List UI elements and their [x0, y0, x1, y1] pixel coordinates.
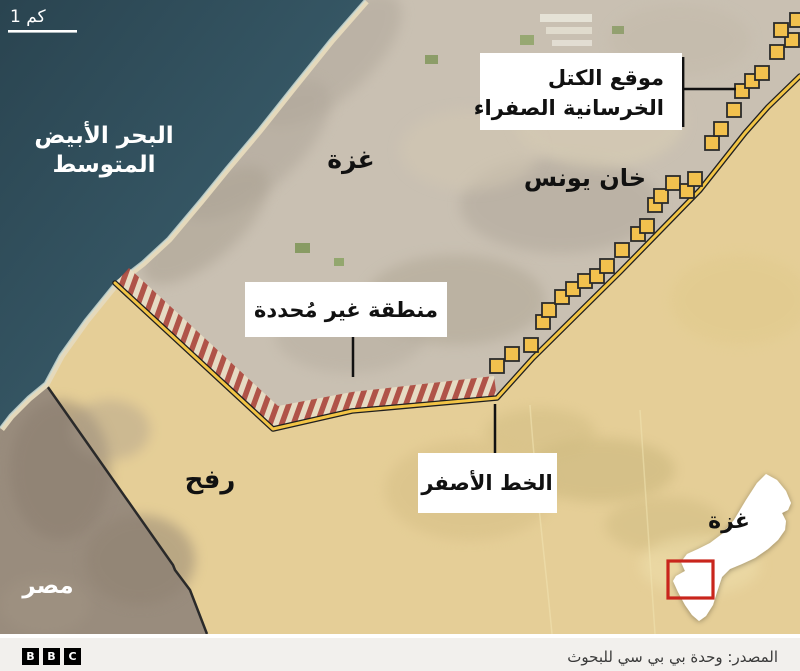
bbc-logo-block: B	[43, 648, 60, 665]
callout-yellow-line-label: الخط الأصفر	[420, 469, 552, 495]
concrete-block-icon	[705, 136, 719, 150]
concrete-block-icon	[600, 259, 614, 273]
label-rafah: رفح	[185, 465, 236, 495]
concrete-block-icon	[524, 338, 538, 352]
concrete-block-icon	[755, 66, 769, 80]
callout-undefined-label: منطقة غير مُحددة	[254, 298, 438, 322]
concrete-block-icon	[542, 303, 556, 317]
bbc-logo-block: B	[22, 648, 39, 665]
label-mediterranean-2: المتوسط	[53, 152, 156, 178]
inset-label-gaza: غزة	[708, 509, 750, 534]
concrete-block-icon	[490, 359, 504, 373]
scale-label: 1 كم	[10, 7, 47, 27]
concrete-block-icon	[790, 13, 800, 27]
bbc-logo: BBC	[22, 648, 81, 665]
callout-blocks-line2: الخرسانية الصفراء	[474, 96, 664, 120]
label-egypt: مصر	[21, 573, 73, 599]
label-khan-younis: خان يونس	[524, 164, 646, 192]
label-mediterranean-1: البحر الأبيض	[34, 120, 173, 149]
bbc-logo-block: C	[64, 648, 81, 665]
concrete-block-icon	[640, 219, 654, 233]
concrete-block-icon	[654, 189, 668, 203]
callout-blocks-line1: موقع الكتل	[548, 66, 664, 90]
concrete-block-icon	[770, 45, 784, 59]
source-text: المصدر: وحدة بي بي سي للبحوث	[567, 648, 778, 666]
concrete-block-icon	[714, 122, 728, 136]
concrete-block-icon	[727, 103, 741, 117]
scale-rule	[8, 30, 77, 33]
map-infographic: 1 كم البحر الأبيض المتوسط غزة خان يونس ر…	[0, 0, 800, 671]
label-gaza: غزة	[327, 145, 374, 175]
footer-bar: BBC المصدر: وحدة بي بي سي للبحوث	[0, 638, 800, 671]
concrete-block-icon	[615, 243, 629, 257]
concrete-block-icon	[774, 23, 788, 37]
concrete-block-icon	[505, 347, 519, 361]
concrete-block-icon	[688, 172, 702, 186]
gaza-map: 1 كم البحر الأبيض المتوسط غزة خان يونس ر…	[0, 0, 800, 634]
concrete-block-icon	[666, 176, 680, 190]
